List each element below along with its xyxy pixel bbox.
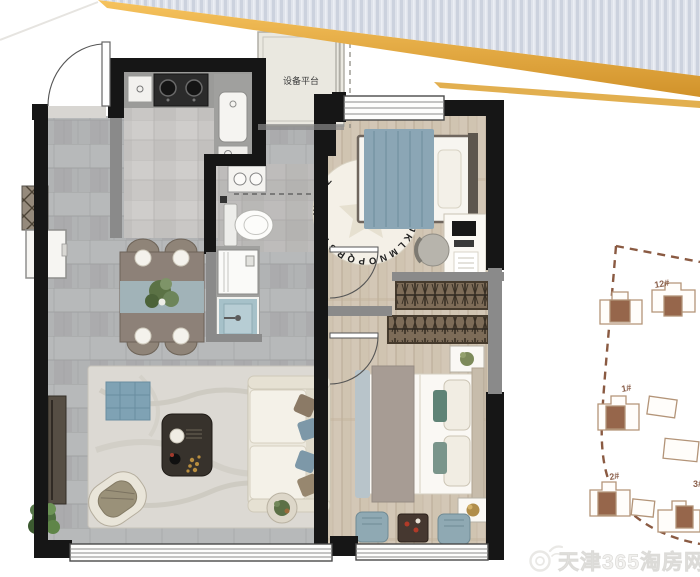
bed-runner <box>372 366 414 502</box>
bedroom2-window <box>344 96 444 120</box>
vanity-basin-right <box>250 173 262 185</box>
blue-bench <box>106 382 150 420</box>
desk-chair <box>416 234 449 266</box>
building-tower <box>676 506 693 528</box>
laundry-sink <box>218 298 258 340</box>
bed-pillow <box>444 380 470 430</box>
building-label: 3# <box>693 479 700 489</box>
side-table <box>267 493 297 523</box>
dining-area <box>120 239 204 355</box>
building-outline <box>631 499 655 517</box>
equipment-platform-label: 设备平台 <box>283 75 319 86</box>
stove <box>154 74 208 106</box>
accent-pillow <box>433 390 447 422</box>
building-label: 2# <box>609 470 621 482</box>
building-outline <box>663 438 699 461</box>
sofa-cushion <box>250 446 306 499</box>
floor-drain <box>220 196 227 203</box>
sheet-edge <box>355 370 370 498</box>
watermark-text: 天津365淘房网 <box>558 550 700 574</box>
accent-pillow <box>433 442 447 474</box>
master-bay-window <box>356 544 488 560</box>
place-setting <box>135 250 151 266</box>
entry-threshold <box>48 106 106 118</box>
bed-headboard <box>472 368 484 500</box>
kitchen-small-sink <box>128 76 152 102</box>
building-tower <box>606 406 625 429</box>
sofa-cushion <box>250 390 306 443</box>
building-tower <box>610 300 630 322</box>
coffee-table <box>162 414 212 476</box>
building-outline <box>647 396 677 418</box>
bay-window-seating <box>356 512 470 544</box>
building-tower <box>664 296 682 316</box>
tea-table <box>398 514 428 542</box>
building-label: 1# <box>621 382 633 394</box>
place-setting <box>173 328 189 344</box>
tv-console <box>48 396 66 504</box>
floorplan-poster: 设备平台 <box>0 0 700 577</box>
washing-machine <box>218 250 258 294</box>
lounge-chair <box>438 514 470 544</box>
bed-headboard <box>468 133 478 225</box>
place-setting <box>135 328 151 344</box>
double-bed <box>355 366 484 502</box>
monitor <box>452 221 476 236</box>
bed-pillow <box>438 150 461 208</box>
living-room-window <box>70 544 332 561</box>
kitchen-sink <box>219 92 247 142</box>
keyboard <box>454 240 474 247</box>
place-setting <box>173 250 189 266</box>
vanity-basin-left <box>234 173 246 185</box>
laundry <box>214 246 260 340</box>
building-tower <box>598 492 616 515</box>
lounge-chair <box>356 512 388 542</box>
bed-pillow <box>444 436 470 486</box>
floor-plan: 设备平台 <box>22 32 504 561</box>
